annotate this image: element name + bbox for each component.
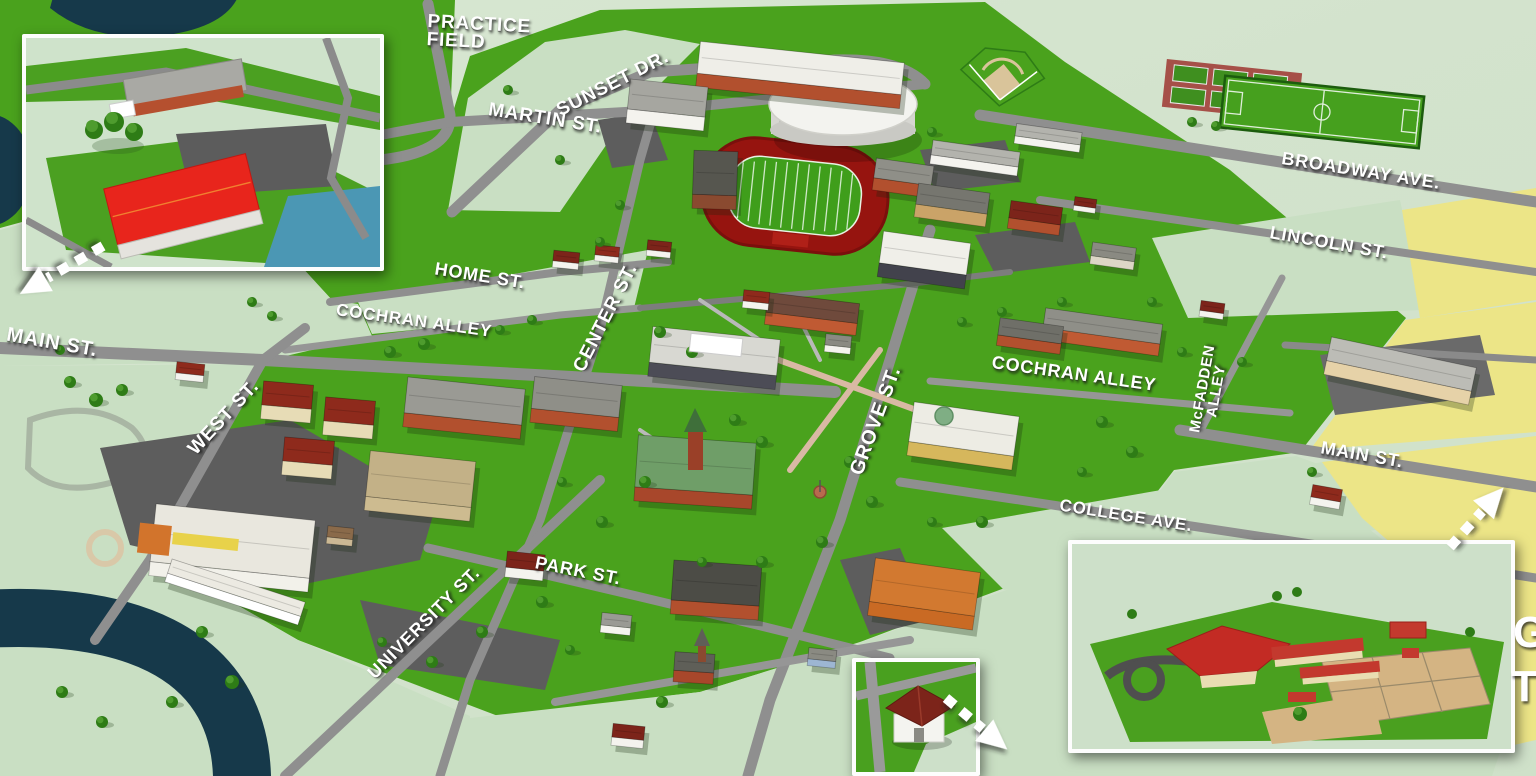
church-south <box>673 652 720 691</box>
inset-northwest-facility <box>22 34 384 271</box>
north-dorm-quad <box>625 79 713 137</box>
tan-fieldhouse <box>364 451 481 528</box>
house-blue <box>807 648 842 675</box>
tudor-dorm-c <box>281 437 340 486</box>
soccer-field <box>1220 76 1424 149</box>
campus-map: PRACTICE FIELDSUNSET DR.MARTIN ST.BROADW… <box>0 0 1536 776</box>
inset-south-house <box>852 658 980 776</box>
tree <box>1187 117 1203 128</box>
cupola-hall <box>529 377 627 438</box>
gothic-hall <box>670 560 767 626</box>
tudor-dorm-a <box>260 381 319 430</box>
house-red-south <box>610 723 650 755</box>
inset-southeast-farm <box>1068 540 1515 753</box>
tudor-dorm-b <box>322 397 381 446</box>
white-barn-park <box>504 551 550 587</box>
house-white-south <box>599 612 637 642</box>
inset2-drive-loop <box>1127 663 1161 697</box>
yellow-hall-dome <box>935 407 953 425</box>
house-west <box>175 362 210 389</box>
chapel-tower-hall <box>692 150 743 216</box>
